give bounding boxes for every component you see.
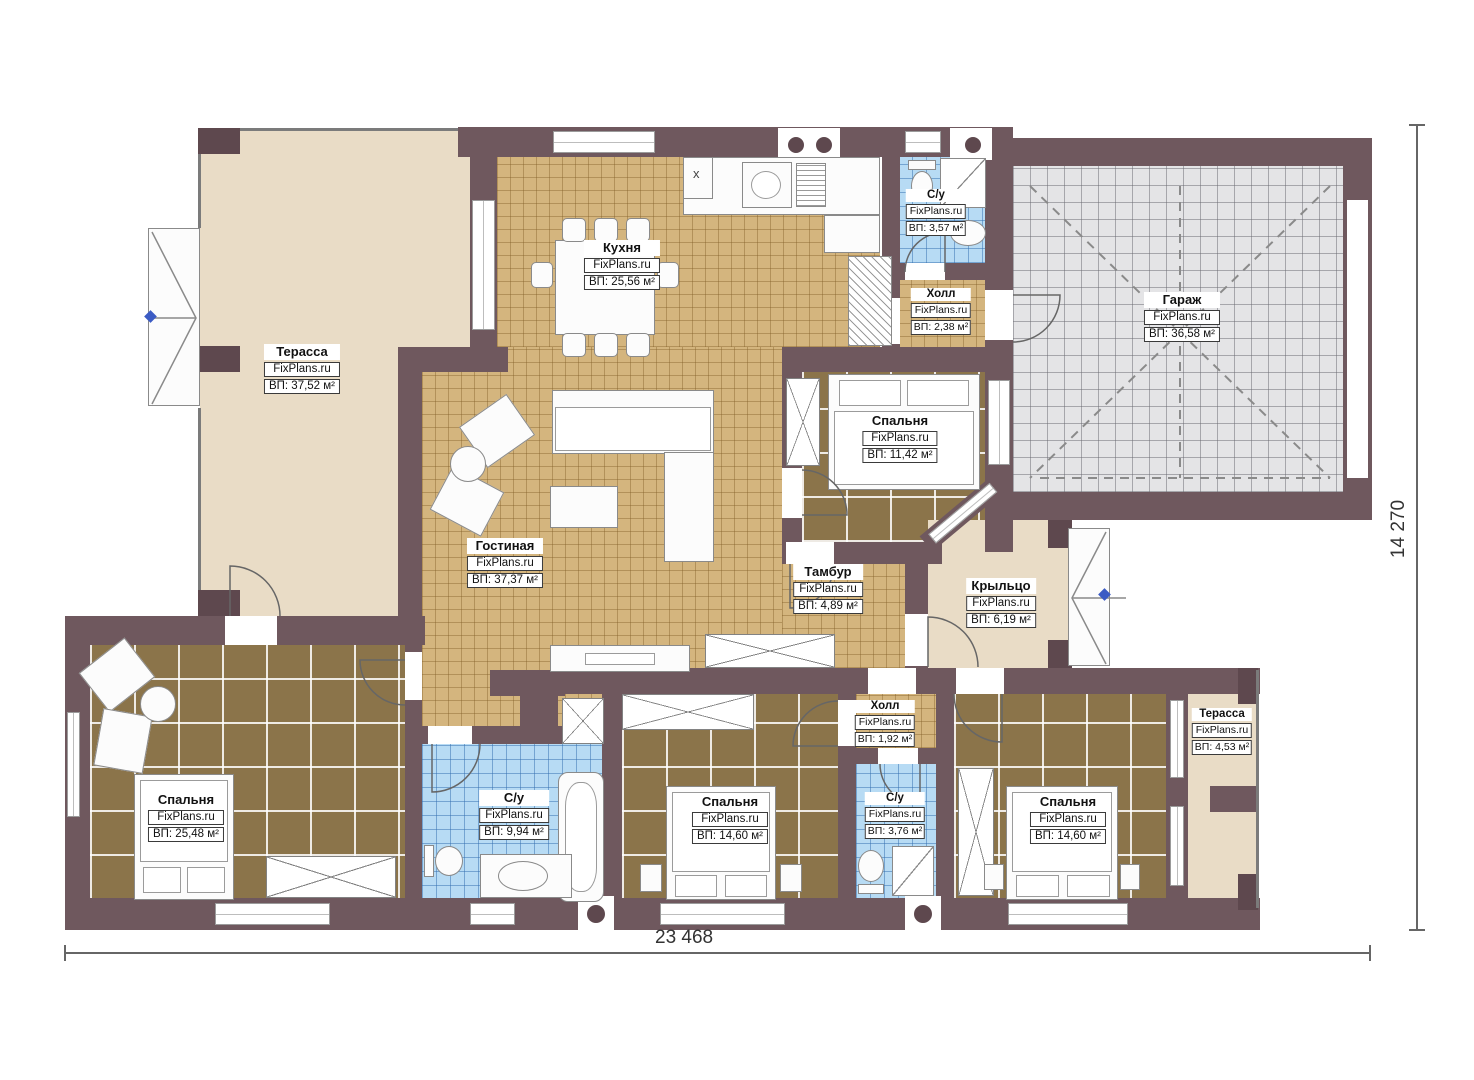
room-name: Терасса [1192, 708, 1252, 721]
watermark: FixPlans.ru [467, 556, 543, 571]
window [215, 903, 330, 925]
dining-chair [657, 262, 679, 288]
door-opening [225, 616, 277, 645]
watermark: FixPlans.ru [584, 258, 660, 273]
watermark: FixPlans.ru [692, 812, 768, 827]
door-opening [956, 668, 1004, 694]
door-opening [878, 748, 918, 764]
room-label-terrace-top: Терасса FixPlans.ru ВП: 37,52 м² [264, 344, 340, 394]
room-name: Спальня [692, 794, 768, 810]
chimney-flue-icon [784, 133, 808, 157]
window [67, 712, 80, 817]
chimney-flue-icon [812, 133, 836, 157]
dimension-line-bottom [65, 952, 1371, 954]
dimension-tick [1369, 945, 1371, 961]
dimension-tick [1409, 929, 1425, 931]
room-label-bedroom-right: Спальня FixPlans.ru ВП: 14,60 м² [1030, 794, 1106, 844]
room-name: Кухня [584, 240, 660, 256]
nightstand [984, 864, 1004, 890]
room-name: Гостиная [467, 538, 543, 554]
terrace-post [198, 346, 240, 372]
wall-post [1238, 874, 1258, 910]
kitchen-cabinet-mark: x [693, 166, 700, 181]
room-label-terrace-bottom: Терасса FixPlans.ru ВП: 4,53 м² [1192, 708, 1252, 755]
kitchen-drainer [796, 163, 826, 207]
terrace-stairs [148, 228, 200, 406]
terrace-post [198, 590, 240, 616]
dimension-line-right [1416, 124, 1418, 931]
wardrobe [622, 694, 754, 730]
watermark: FixPlans.ru [1192, 723, 1252, 738]
room-name: Спальня [148, 792, 224, 808]
wall-segment [936, 694, 954, 900]
wall-post [1238, 668, 1258, 704]
window [472, 200, 495, 330]
room-area: ВП: 1,92 м² [855, 732, 915, 747]
room-label-living-room: Гостиная FixPlans.ru ВП: 37,37 м² [467, 538, 543, 588]
wall-segment [398, 347, 508, 372]
tv-cabinet [550, 645, 690, 672]
column-icon [583, 901, 609, 927]
room-label-bathroom-bottom: С/у FixPlans.ru ВП: 3,76 м² [865, 792, 925, 839]
door-opening [786, 542, 834, 564]
watermark: FixPlans.ru [966, 596, 1036, 611]
room-area: ВП: 36,58 м² [1144, 327, 1220, 342]
door-opening [985, 290, 1013, 340]
room-area: ВП: 3,57 м² [906, 221, 966, 236]
toilet-bowl-icon [858, 850, 884, 882]
room-area: ВП: 25,48 м² [148, 827, 224, 842]
room-label-bedroom-middle: Спальня FixPlans.ru ВП: 11,42 м² [862, 413, 937, 463]
door-opening [905, 263, 945, 280]
nightstand [640, 864, 662, 892]
room-area: ВП: 6,19 м² [966, 613, 1036, 628]
room-label-kitchen: Кухня FixPlans.ru ВП: 25,56 м² [584, 240, 660, 290]
door-opening [782, 468, 802, 518]
dimension-tick [1409, 124, 1425, 126]
toilet-icon [858, 884, 884, 894]
room-name: Тамбур [793, 564, 863, 580]
room-label-bedroom-left: Спальня FixPlans.ru ВП: 25,48 м² [148, 792, 224, 842]
wall-segment [602, 694, 622, 900]
room-area: ВП: 25,56 м² [584, 275, 660, 290]
shower-icon [892, 846, 934, 896]
room-name: Терасса [264, 344, 340, 360]
watermark: FixPlans.ru [1030, 812, 1106, 827]
window [470, 903, 515, 925]
room-name: Крыльцо [966, 578, 1036, 594]
toilet-bowl-icon [435, 846, 463, 876]
room-name: С/у [906, 189, 966, 202]
room-label-bedroom-center: Спальня FixPlans.ru ВП: 14,60 м² [692, 794, 768, 844]
room-name: Гараж [1144, 292, 1220, 308]
window [660, 903, 785, 925]
room-area: ВП: 14,60 м² [692, 829, 768, 844]
window [1170, 806, 1184, 886]
toilet-icon [908, 160, 936, 170]
dining-chair [594, 218, 618, 242]
window [553, 131, 655, 153]
watermark: FixPlans.ru [793, 582, 863, 597]
window [1008, 903, 1128, 925]
watermark: FixPlans.ru [855, 715, 915, 730]
room-name: Спальня [1030, 794, 1106, 810]
dining-chair [562, 218, 586, 242]
coffee-table [550, 486, 618, 528]
room-area: ВП: 37,37 м² [467, 573, 543, 588]
armchair [93, 708, 152, 774]
dining-chair [594, 333, 618, 357]
watermark: FixPlans.ru [264, 362, 340, 377]
wall-segment [1013, 492, 1372, 520]
watermark: FixPlans.ru [911, 303, 971, 318]
watermark: FixPlans.ru [148, 810, 224, 825]
kitchen-sink [742, 162, 792, 208]
side-table [140, 686, 176, 722]
room-label-porch: Крыльцо FixPlans.ru ВП: 6,19 м² [966, 578, 1036, 628]
room-area: ВП: 37,52 м² [264, 379, 340, 394]
door-opening [428, 726, 472, 744]
room-name: Холл [855, 700, 915, 713]
chimney-flue-icon [961, 133, 985, 157]
wall-stub [1210, 786, 1258, 812]
dimension-height-label: 14 270 [1388, 500, 1410, 558]
toilet-icon [424, 845, 434, 877]
room-area: ВП: 2,38 м² [911, 320, 971, 335]
wardrobe [266, 856, 396, 898]
sink-icon [498, 861, 548, 891]
door-opening [1347, 200, 1368, 478]
room-label-garage: Гараж FixPlans.ru ВП: 36,58 м² [1144, 292, 1220, 342]
floor-plan-canvas: x [0, 0, 1474, 1080]
dimension-tick [64, 945, 66, 961]
terrace-edge-line [240, 128, 458, 131]
door-opening [838, 700, 856, 746]
room-area: ВП: 4,53 м² [1192, 740, 1252, 755]
watermark: FixPlans.ru [479, 808, 549, 823]
window [905, 131, 941, 153]
wall-segment [1013, 138, 1372, 166]
watermark: FixPlans.ru [862, 431, 937, 446]
room-area: ВП: 4,89 м² [793, 599, 863, 614]
dining-chair [562, 333, 586, 357]
room-label-bathroom-top: С/у FixPlans.ru ВП: 3,57 м² [906, 189, 966, 236]
sofa-chaise [664, 452, 714, 562]
door-opening [905, 614, 928, 666]
dining-chair [531, 262, 553, 288]
column-icon [910, 901, 936, 927]
room-area: ВП: 11,42 м² [862, 448, 937, 463]
terrace-edge-line [198, 154, 201, 228]
wardrobe [705, 634, 835, 668]
window [988, 380, 1010, 465]
window [1170, 700, 1184, 778]
nightstand [1120, 864, 1140, 890]
terrace-edge-line [1256, 670, 1259, 908]
room-name: Спальня [862, 413, 937, 429]
terrace-edge-line [198, 408, 201, 590]
porch-stairs [1068, 528, 1110, 666]
room-name: Холл [911, 288, 971, 301]
kitchen-counter-side [824, 215, 880, 253]
door-opening [868, 668, 916, 694]
dining-chair [626, 218, 650, 242]
dining-chair [626, 333, 650, 357]
room-area: ВП: 3,76 м² [865, 824, 925, 839]
room-name: С/у [479, 790, 549, 806]
wall-segment [782, 347, 1013, 372]
room-label-hall-bottom: Холл FixPlans.ru ВП: 1,92 м² [855, 700, 915, 747]
watermark: FixPlans.ru [865, 807, 925, 822]
door-opening [405, 652, 422, 700]
side-table [450, 446, 486, 482]
room-area: ВП: 9,94 м² [479, 825, 549, 840]
room-label-bathroom-main: С/у FixPlans.ru ВП: 9,94 м² [479, 790, 549, 840]
dimension-width-label: 23 468 [655, 927, 713, 949]
nightstand [780, 864, 802, 892]
room-area: ВП: 14,60 м² [1030, 829, 1106, 844]
terrace-post [198, 128, 240, 154]
wardrobe [786, 378, 820, 466]
room-label-hall-top: Холл FixPlans.ru ВП: 2,38 м² [911, 288, 971, 335]
kitchen-stove-unit [848, 256, 892, 346]
room-name: С/у [865, 792, 925, 805]
sofa [552, 390, 714, 454]
watermark: FixPlans.ru [1144, 310, 1220, 325]
room-label-vestibule: Тамбур FixPlans.ru ВП: 4,89 м² [793, 564, 863, 614]
wall-segment [398, 372, 422, 630]
storage-cabinet [562, 698, 604, 744]
watermark: FixPlans.ru [906, 204, 966, 219]
